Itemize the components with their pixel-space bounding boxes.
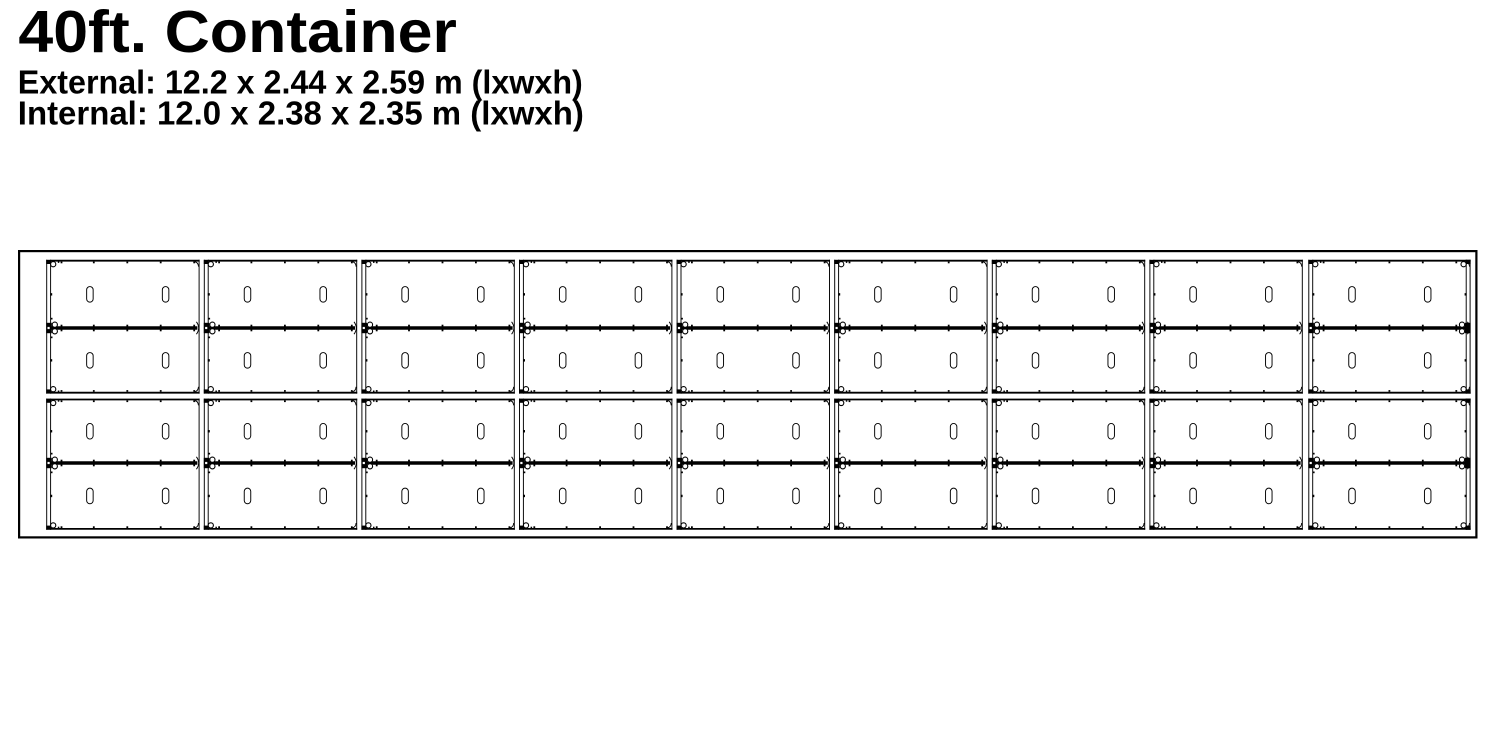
svg-text:Internal: 12.0 x 2.38 x 2.35 m: Internal: 12.0 x 2.38 x 2.35 m (lxwxh) [18,96,584,133]
svg-text:40ft. Container: 40ft. Container [18,0,457,65]
